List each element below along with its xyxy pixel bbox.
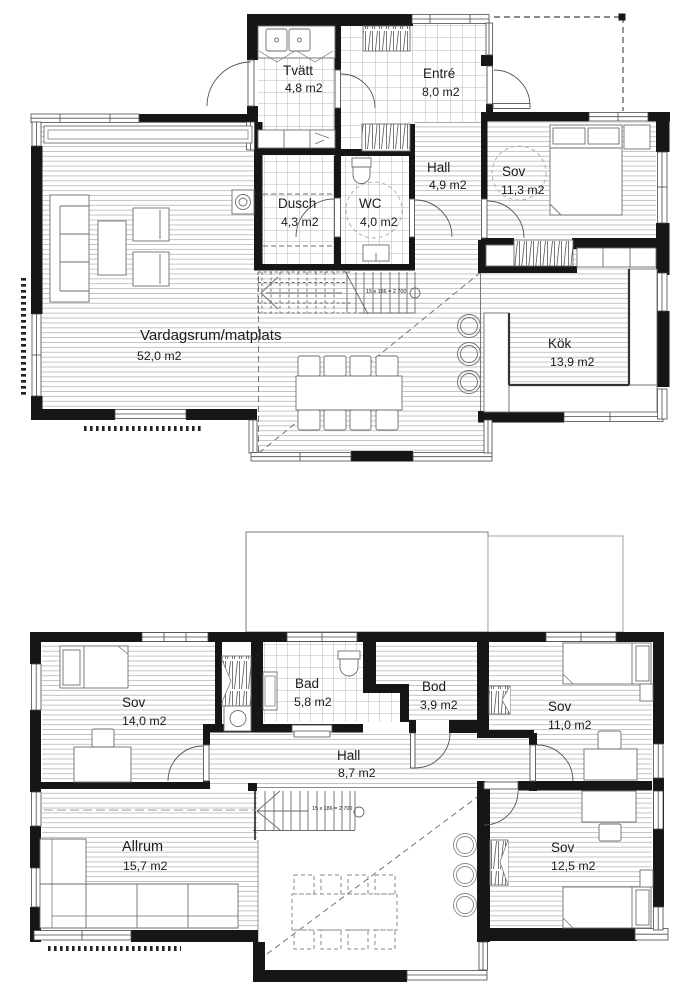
svg-text:WC: WC [359, 196, 382, 211]
svg-text:Tvätt: Tvätt [283, 63, 313, 78]
svg-text:13,9 m2: 13,9 m2 [550, 355, 595, 369]
svg-text:Sov: Sov [551, 840, 575, 855]
svg-text:Vardagsrum/matplats: Vardagsrum/matplats [140, 327, 281, 344]
svg-text:4,3 m2: 4,3 m2 [281, 215, 319, 229]
svg-text:15 x 186 = 2 700: 15 x 186 = 2 700 [366, 289, 406, 295]
svg-text:3,9 m2: 3,9 m2 [420, 698, 458, 712]
svg-text:14,0 m2: 14,0 m2 [122, 714, 167, 728]
svg-text:12,5 m2: 12,5 m2 [551, 859, 596, 873]
svg-text:52,0 m2: 52,0 m2 [137, 349, 182, 363]
svg-text:Sov: Sov [502, 164, 526, 179]
svg-text:Dusch: Dusch [278, 196, 316, 211]
svg-text:8,7 m2: 8,7 m2 [338, 766, 376, 780]
svg-text:Sov: Sov [122, 695, 146, 710]
svg-text:Kök: Kök [548, 336, 572, 351]
svg-text:11,3 m2: 11,3 m2 [501, 183, 545, 197]
svg-text:15 x 186 = 2 700: 15 x 186 = 2 700 [312, 806, 352, 812]
svg-text:4,8 m2: 4,8 m2 [285, 81, 323, 95]
svg-text:Entré: Entré [423, 66, 455, 81]
svg-text:4,9 m2: 4,9 m2 [429, 178, 467, 192]
svg-text:5,8 m2: 5,8 m2 [294, 695, 332, 709]
svg-text:8,0 m2: 8,0 m2 [422, 85, 460, 99]
svg-text:11,0 m2: 11,0 m2 [548, 718, 592, 732]
svg-text:Hall: Hall [337, 748, 360, 763]
svg-text:Bod: Bod [422, 679, 446, 694]
svg-text:Allrum: Allrum [122, 839, 163, 855]
svg-text:Sov: Sov [548, 699, 572, 714]
svg-text:Bad: Bad [295, 676, 319, 691]
svg-text:15,7 m2: 15,7 m2 [123, 859, 168, 873]
svg-text:Hall: Hall [427, 160, 450, 175]
svg-text:4,0 m2: 4,0 m2 [360, 215, 398, 229]
